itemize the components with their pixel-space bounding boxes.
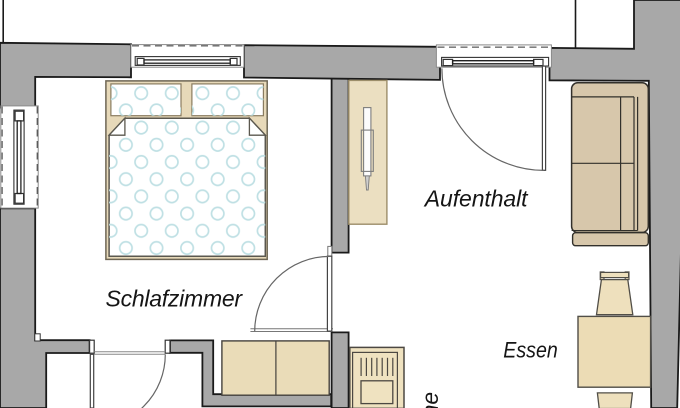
svg-text:Küche: Küche <box>417 392 443 408</box>
svg-text:Schlafzimmer: Schlafzimmer <box>106 286 244 312</box>
svg-text:Aufenthalt: Aufenthalt <box>423 186 529 212</box>
svg-text:Essen: Essen <box>503 337 558 362</box>
